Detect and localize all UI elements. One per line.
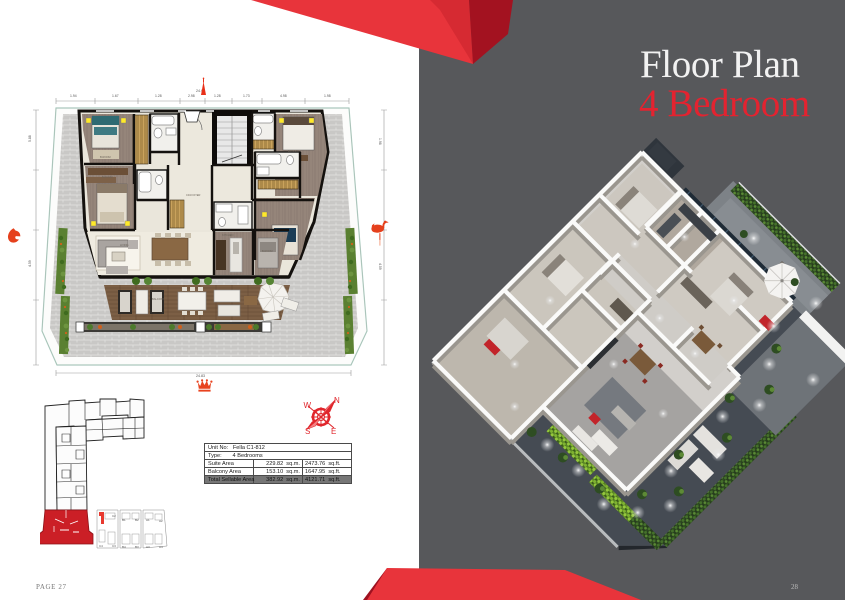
svg-text:B3: B3 [135,545,139,549]
svg-text:1.67: 1.67 [112,94,119,98]
svg-text:1.98: 1.98 [324,94,331,98]
svg-text:4.59: 4.59 [28,260,32,267]
svg-text:E: E [331,427,336,436]
svg-text:A4: A4 [159,545,163,549]
svg-text:B.ROOM: B.ROOM [288,149,299,153]
svg-text:4.59: 4.59 [378,263,382,270]
svg-text:1.73: 1.73 [243,94,250,98]
svg-text:C4: C4 [99,544,103,548]
svg-text:KITCHEN: KITCHEN [222,233,234,237]
svg-text:C04 FOYER: C04 FOYER [186,193,201,197]
svg-text:W: W [304,401,312,410]
svg-text:LIVING: LIVING [120,243,129,247]
svg-text:4.98: 4.98 [280,94,287,98]
svg-text:1.28: 1.28 [155,94,162,98]
svg-text:B4: B4 [122,545,126,549]
svg-text:5.88: 5.88 [28,135,32,142]
svg-text:B2: B2 [135,518,139,522]
svg-text:1.98: 1.98 [378,138,382,145]
svg-text:A1: A1 [146,518,150,522]
svg-text:N: N [334,396,340,405]
svg-text:2.98: 2.98 [188,94,195,98]
svg-text:1.94: 1.94 [70,94,77,98]
svg-text:S: S [305,427,310,436]
svg-text:BALCONY: BALCONY [152,297,165,301]
svg-text:C3: C3 [112,544,116,548]
svg-text:B.ROOM: B.ROOM [262,249,273,253]
svg-text:A2: A2 [159,519,163,523]
svg-text:A3: A3 [146,545,150,549]
svg-text:B.ROOM: B.ROOM [102,175,113,179]
svg-text:C2: C2 [112,514,116,518]
svg-text:B.ROOM: B.ROOM [100,155,111,159]
svg-text:1.28: 1.28 [214,94,221,98]
svg-text:24.83: 24.83 [196,374,205,378]
svg-text:B1: B1 [122,518,126,522]
